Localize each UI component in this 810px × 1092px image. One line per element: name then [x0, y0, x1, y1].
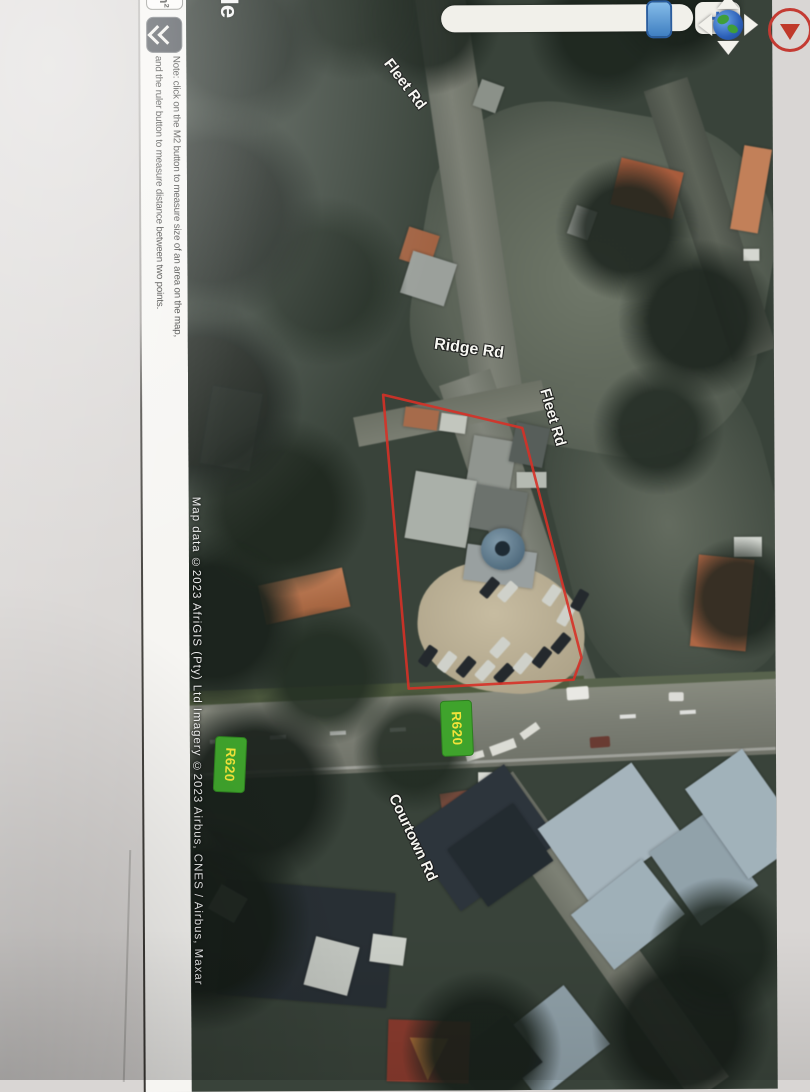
route-shield-label: R620 [449, 711, 465, 746]
pan-control[interactable] [698, 0, 758, 55]
pan-down-arrow-icon[interactable] [717, 41, 739, 55]
route-shield-r620: R620 [440, 700, 474, 757]
toolbar-strip: m² Note: click on the M2 button to measu… [140, 0, 192, 1092]
instruction-note: Note: click on the M2 button to measure … [143, 56, 186, 396]
globe-land [726, 23, 739, 35]
route-shield-label: R620 [222, 747, 239, 782]
measure-area-m2-button[interactable]: m² [146, 0, 183, 10]
down-arrow-icon [780, 24, 800, 40]
map-attribution: Map data ©2023 AfriGIS (Pty) Ltd Imagery… [190, 497, 205, 986]
globe-icon[interactable] [713, 10, 743, 40]
pan-right-arrow-icon[interactable] [744, 14, 758, 36]
parcel-outline [186, 0, 778, 1092]
red-circle-arrow-annotation [768, 8, 810, 52]
note-line-1: Note: click on the M2 button to measure … [167, 56, 186, 396]
map-canvas[interactable]: Fleet Rd Ridge Rd Fleet Rd Courtown Rd R… [186, 0, 778, 1092]
chevrons-button[interactable] [146, 17, 182, 53]
paper-crease [123, 850, 131, 1082]
printed-screenshot: m² Note: click on the M2 button to measu… [140, 0, 772, 1092]
pan-up-arrow-icon[interactable] [717, 0, 739, 9]
m2-button-label: m² [157, 0, 172, 9]
note-line-2: and the ruler button to measure distance… [149, 56, 168, 396]
google-logo-watermark: gle [214, 0, 242, 18]
route-shield-r620: R620 [213, 736, 248, 793]
pan-left-arrow-icon[interactable] [698, 14, 712, 36]
zoom-slider-handle[interactable] [646, 0, 672, 38]
